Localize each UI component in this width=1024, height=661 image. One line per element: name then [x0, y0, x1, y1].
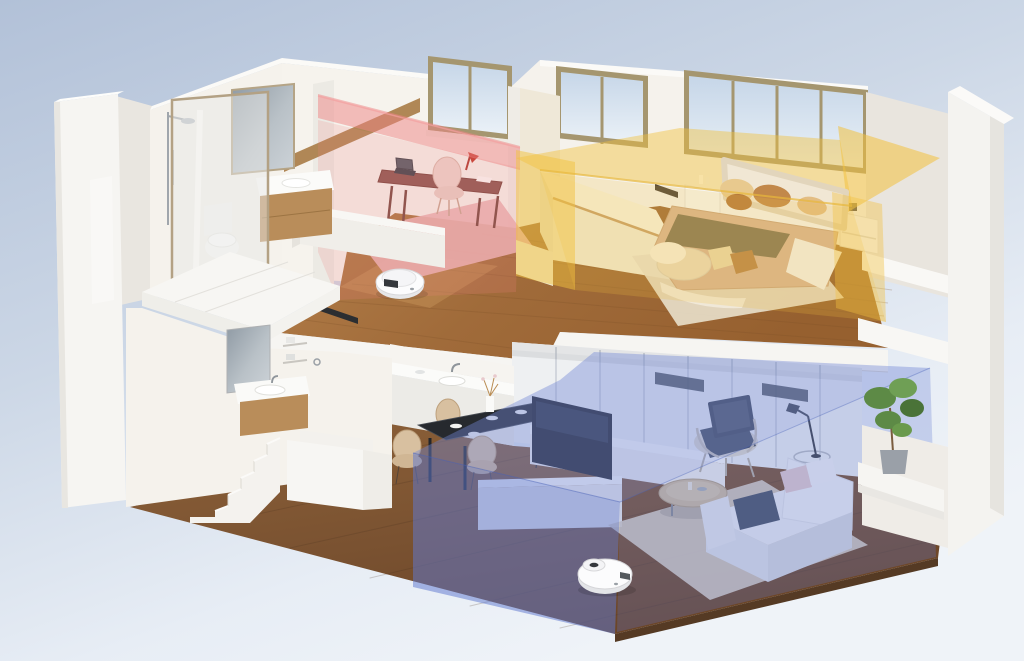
towel	[286, 354, 295, 360]
vanity-cabinet	[260, 188, 332, 242]
light-patch	[90, 176, 114, 304]
foliage	[900, 399, 924, 417]
stair-newel-mass	[363, 450, 392, 510]
plant-pot	[880, 450, 908, 474]
glass-highlight	[196, 110, 200, 270]
towel	[286, 337, 295, 343]
robot-sensor	[410, 288, 414, 290]
vanity-sink	[282, 179, 310, 188]
robot-lidar-sensor	[590, 563, 599, 567]
vase	[486, 396, 494, 412]
plate	[450, 424, 462, 429]
blossom	[481, 377, 485, 381]
robot-sensor	[614, 583, 618, 585]
blossom	[493, 374, 497, 378]
right-wall-edge	[990, 116, 1004, 516]
kitchen-sink	[439, 377, 465, 386]
wash-basin	[234, 376, 310, 436]
cutaway-house-render	[0, 0, 1024, 661]
bedroom-window-left	[556, 66, 648, 148]
dish	[415, 370, 425, 374]
stair-landing-mass	[287, 440, 363, 510]
yellow-zone-right-face	[832, 192, 886, 322]
scene-stage	[0, 0, 1024, 661]
foliage	[889, 378, 917, 398]
basin	[255, 385, 285, 395]
foliage	[892, 423, 912, 437]
